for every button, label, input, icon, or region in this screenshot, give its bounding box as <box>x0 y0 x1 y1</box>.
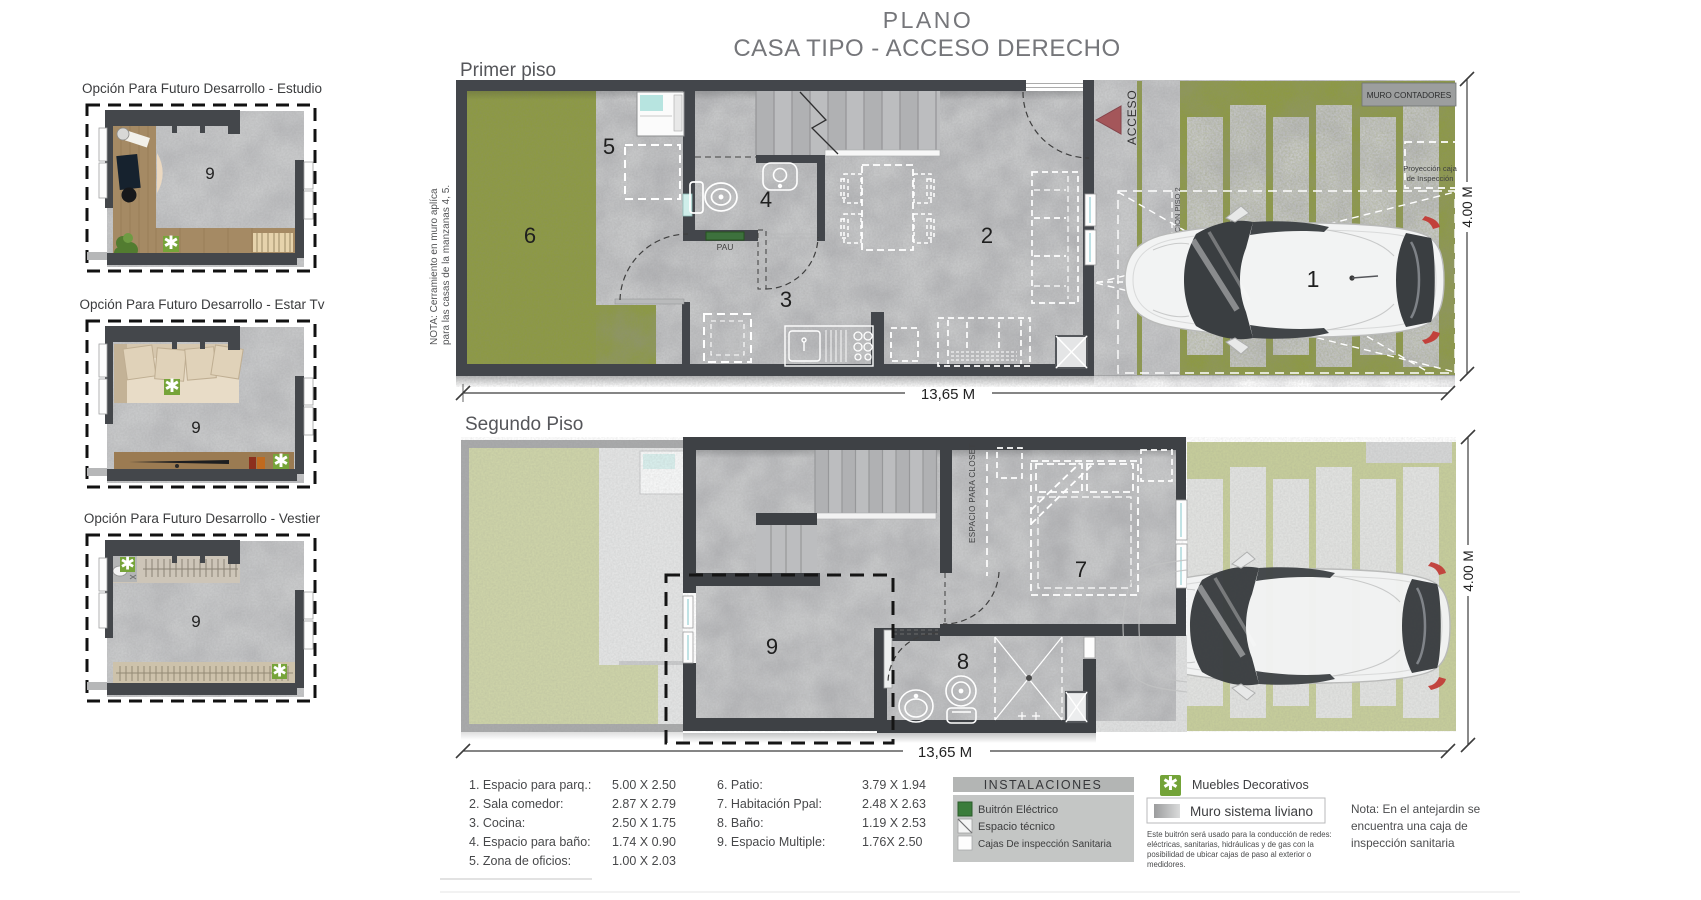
svg-text:13,65 M: 13,65 M <box>921 386 975 403</box>
svg-text:ACCESO: ACCESO <box>1125 90 1139 145</box>
svg-text:✱: ✱ <box>120 553 134 573</box>
svg-text:CASA TIPO - ACCESO DERECHO: CASA TIPO - ACCESO DERECHO <box>733 35 1120 62</box>
svg-text:eléctricas, sanitarias, hidráu: eléctricas, sanitarias, hidráulicas y de… <box>1147 840 1315 849</box>
svg-text:Muro sistema liviano: Muro sistema liviano <box>1190 804 1313 819</box>
svg-text:Espacio técnico: Espacio técnico <box>978 821 1055 833</box>
svg-text:1: 1 <box>1307 266 1320 292</box>
svg-text:4. Espacio para baño:: 4. Espacio para baño: <box>469 835 591 849</box>
svg-text:1.19 X 2.53: 1.19 X 2.53 <box>862 816 926 830</box>
svg-text:Opción Para Futuro Desarrollo: Opción Para Futuro Desarrollo - Estar Tv <box>79 297 324 312</box>
svg-text:1.76X 2.50: 1.76X 2.50 <box>862 835 923 849</box>
svg-text:9. Espacio Multiple:: 9. Espacio Multiple: <box>717 835 825 849</box>
svg-text:PLANO: PLANO <box>883 7 973 33</box>
svg-text:para las casas de la manzanas: para las casas de la manzanas 4, 5. <box>441 185 452 345</box>
svg-text:✱: ✱ <box>164 375 179 396</box>
svg-text:Cajas De inspección Sanitaria: Cajas De inspección Sanitaria <box>978 839 1112 850</box>
svg-text:9: 9 <box>191 612 200 631</box>
svg-text:Buitrón Eléctrico: Buitrón Eléctrico <box>978 804 1058 816</box>
svg-text:4.00 M: 4.00 M <box>1460 186 1475 227</box>
svg-text:7: 7 <box>1075 557 1087 582</box>
svg-text:6. Patio:: 6. Patio: <box>717 778 763 792</box>
svg-text:9: 9 <box>191 418 200 437</box>
svg-text:posibilidad de ubicar cajas de: posibilidad de ubicar cajas de paso al e… <box>1147 850 1312 859</box>
svg-text:encuentra una caja de: encuentra una caja de <box>1351 819 1468 833</box>
svg-text:1.74 X 0.90: 1.74 X 0.90 <box>612 835 676 849</box>
svg-text:de Inspección: de Inspección <box>1407 174 1454 183</box>
svg-text:9: 9 <box>205 164 214 183</box>
svg-text:Este buitrón será usado para l: Este buitrón será usado para la conducci… <box>1147 830 1332 839</box>
svg-text:Proyección caja: Proyección caja <box>1403 164 1457 173</box>
svg-text:8. Baño:: 8. Baño: <box>717 816 764 830</box>
svg-text:✱: ✱ <box>163 232 178 253</box>
svg-text:4: 4 <box>760 187 772 212</box>
svg-text:✱: ✱ <box>1163 774 1179 795</box>
svg-text:medidores.: medidores. <box>1147 860 1186 869</box>
svg-text:5: 5 <box>603 134 615 159</box>
svg-text:4.00 M: 4.00 M <box>1461 550 1476 591</box>
svg-text:1. Espacio para parq.:: 1. Espacio para parq.: <box>469 778 591 792</box>
svg-text:2.87 X 2.79: 2.87 X 2.79 <box>612 797 676 811</box>
svg-text:2.50 X 1.75: 2.50 X 1.75 <box>612 816 676 830</box>
svg-text:8: 8 <box>957 649 969 674</box>
svg-text:5.00 X 2.50: 5.00 X 2.50 <box>612 778 676 792</box>
svg-text:3: 3 <box>780 287 792 312</box>
svg-text:✱: ✱ <box>273 450 288 471</box>
svg-text:Nota: En el antejardin se: Nota: En el antejardin se <box>1351 802 1481 816</box>
svg-text:2.48 X 2.63: 2.48 X 2.63 <box>862 797 926 811</box>
svg-text:Opción Para Futuro Desarrollo: Opción Para Futuro Desarrollo - Vestier <box>84 511 321 526</box>
svg-text:NOTA: Cerramiento en muro apl: NOTA: Cerramiento en muro aplíca <box>429 188 440 345</box>
svg-text:5. Zona de oficios:: 5. Zona de oficios: <box>469 854 571 868</box>
svg-text:3.79 X 1.94: 3.79 X 1.94 <box>862 778 926 792</box>
svg-text:PAU: PAU <box>717 242 734 252</box>
svg-text:inspección sanitaria: inspección sanitaria <box>1351 836 1455 850</box>
svg-text:Segundo Piso: Segundo Piso <box>465 414 583 435</box>
svg-text:7. Habitación Ppal:: 7. Habitación Ppal: <box>717 797 822 811</box>
svg-text:Primer piso: Primer piso <box>460 60 556 81</box>
svg-text:3. Cocina:: 3. Cocina: <box>469 816 525 830</box>
svg-text:✱: ✱ <box>272 660 286 680</box>
svg-text:2. Sala comedor:: 2. Sala comedor: <box>469 797 564 811</box>
svg-text:Opción Para Futuro Desarrollo: Opción Para Futuro Desarrollo - Estudio <box>82 81 322 96</box>
svg-text:ESPACIO PARA CLOSET: ESPACIO PARA CLOSET <box>968 443 977 543</box>
svg-text:9: 9 <box>766 634 778 659</box>
svg-text:INSTALACIONES: INSTALACIONES <box>984 778 1103 792</box>
svg-text:13,65 M: 13,65 M <box>918 744 972 761</box>
svg-text:MURO CONTADORES: MURO CONTADORES <box>1367 91 1452 100</box>
svg-text:2: 2 <box>981 223 993 248</box>
svg-text:1.00 X 2.03: 1.00 X 2.03 <box>612 854 676 868</box>
svg-text:6: 6 <box>524 223 536 248</box>
svg-text:Muebles Decorativos: Muebles Decorativos <box>1192 778 1309 792</box>
